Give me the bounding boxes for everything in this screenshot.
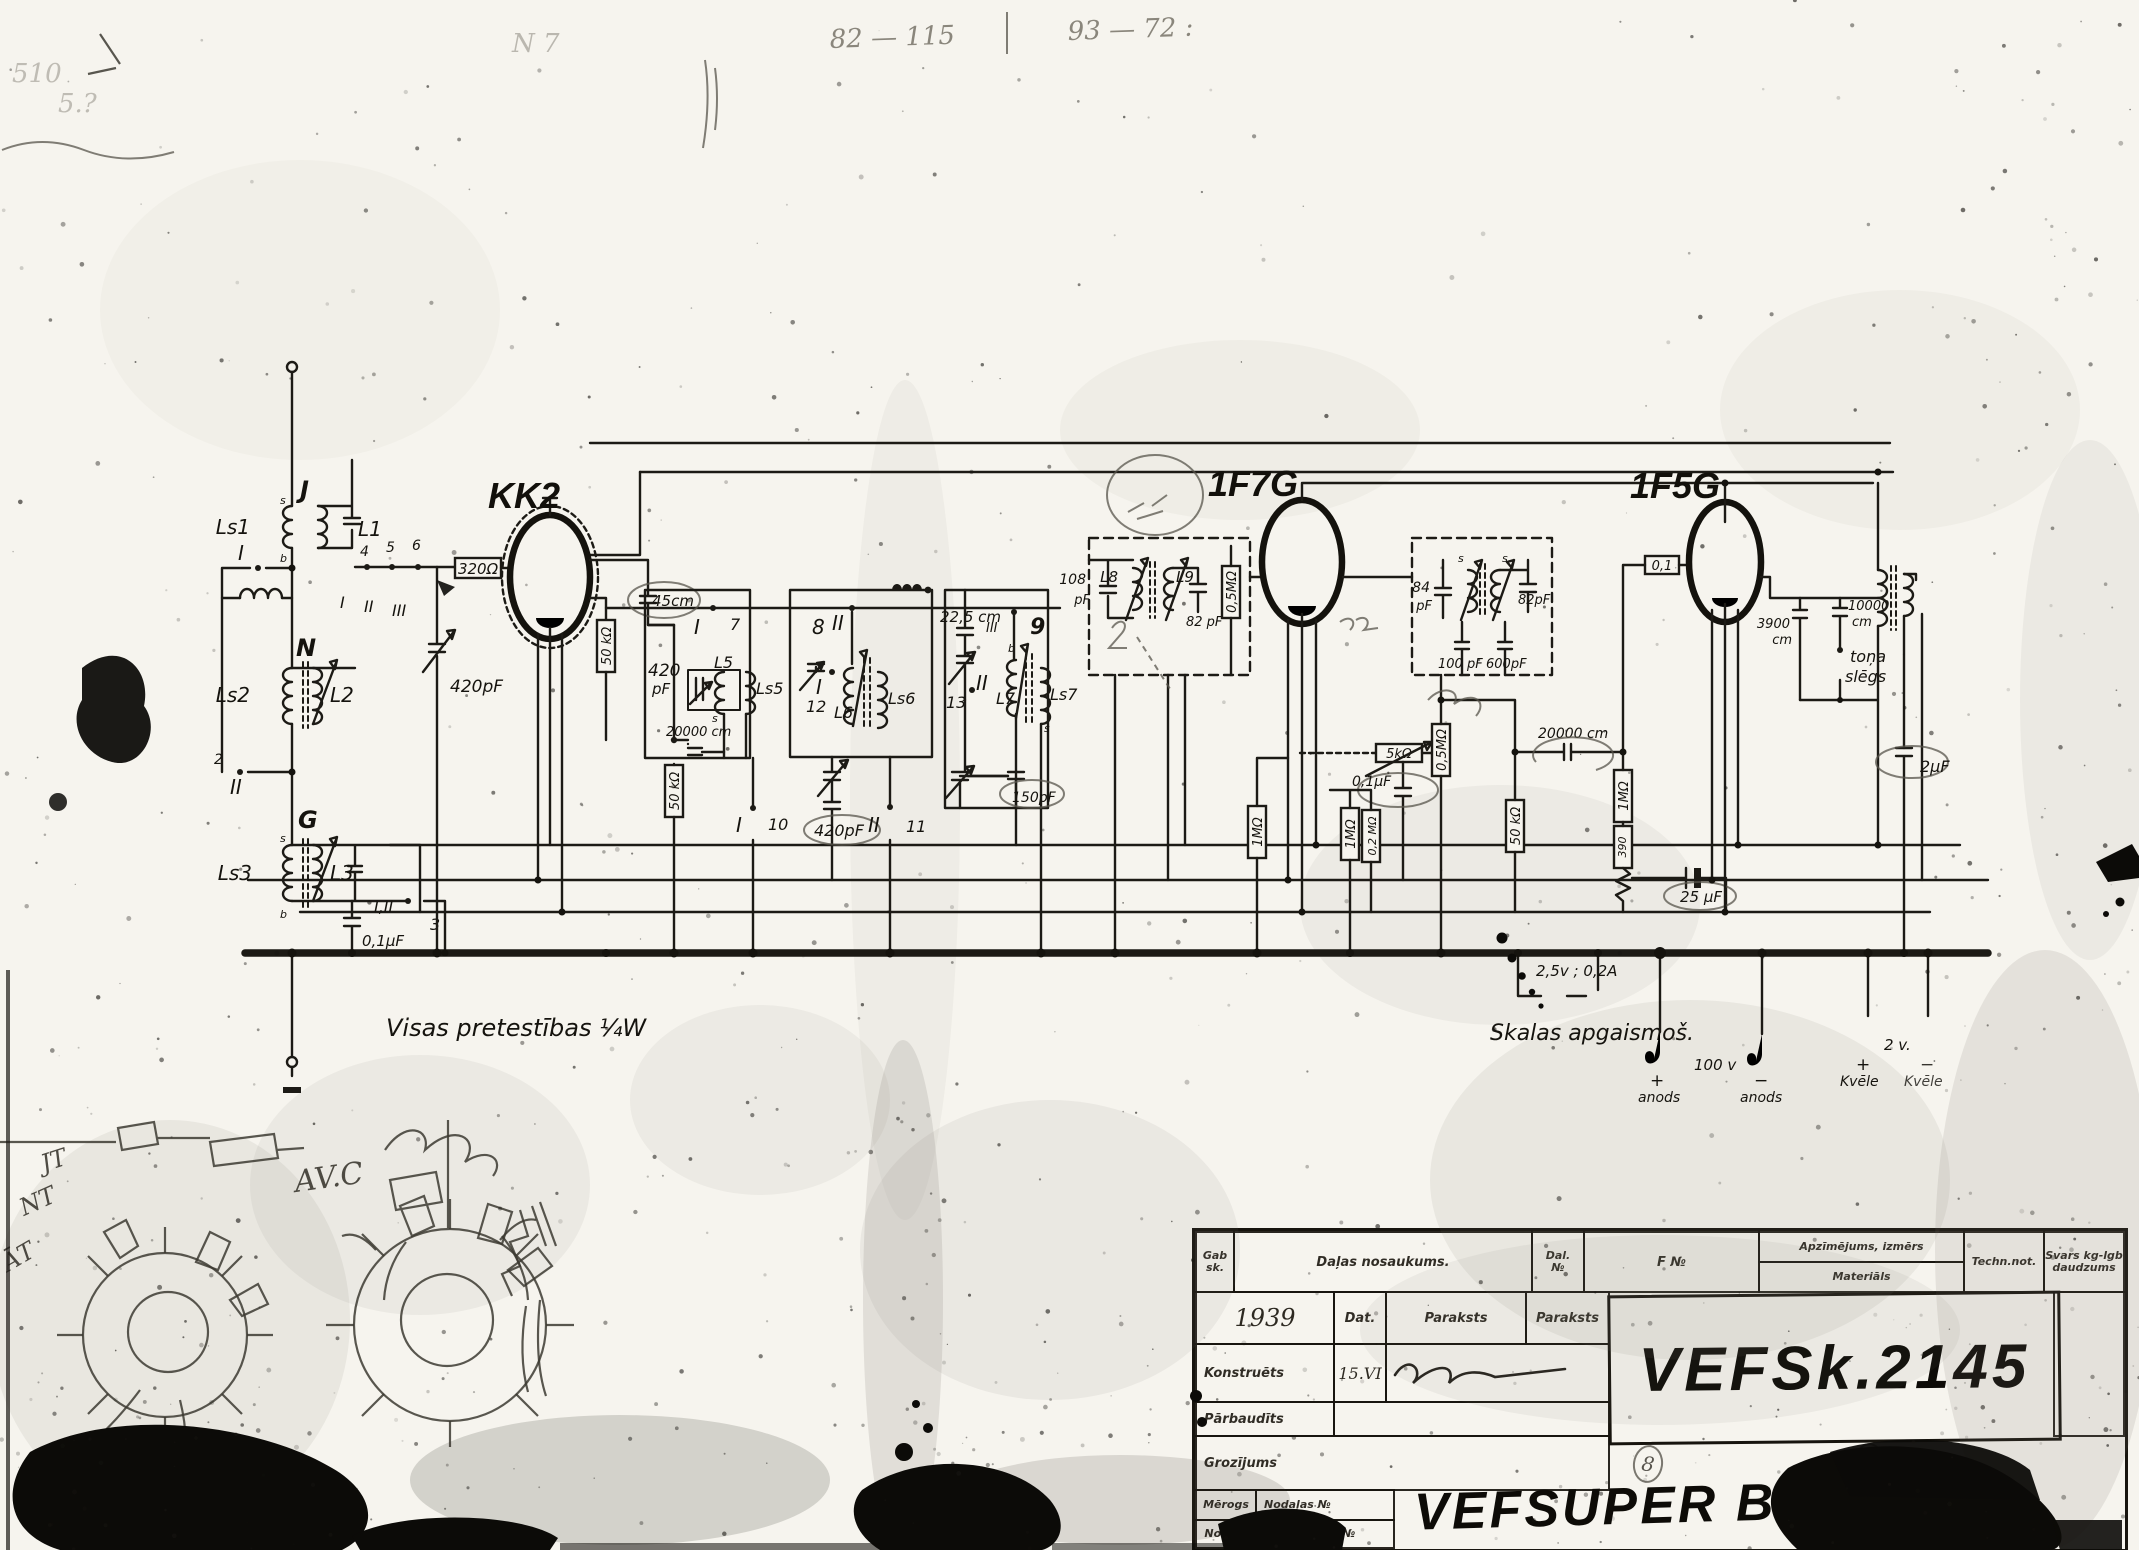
label-ls7: Ls7 bbox=[1050, 685, 1078, 704]
signature-scribble bbox=[1387, 1345, 1597, 1385]
label-sw10-n: 10 bbox=[768, 815, 788, 834]
label-bsIII: III bbox=[392, 601, 406, 620]
label-c01-g: 0,1 bbox=[1652, 559, 1673, 574]
anode-plus-sign: + bbox=[1650, 1071, 1664, 1091]
power-rails bbox=[245, 443, 1988, 953]
doc-number-stamp: VEFSk.2145 bbox=[1607, 1291, 2062, 1446]
label-sw-ii-num: 2 bbox=[214, 752, 223, 768]
pin-b-2: b bbox=[280, 908, 287, 921]
tb-cell-par2: Paraksts bbox=[1525, 1291, 1610, 1345]
label-c3900-u: cm bbox=[1772, 633, 1792, 648]
label-tube-1f7g: 1F7G bbox=[1208, 463, 1298, 504]
tb-cell-ietilpst: Ietilpst daļā № bbox=[1255, 1519, 1395, 1549]
label-c01-input: 0,1µF bbox=[362, 932, 404, 950]
scanned-schematic-page: Gab sk. Daļas nosaukums. Dal. № F № Apzī… bbox=[0, 0, 2139, 1550]
label-c3900-v: 3900 bbox=[1757, 617, 1790, 632]
label-tone-1: toņa bbox=[1850, 647, 1886, 666]
pin-b-3: b bbox=[1008, 642, 1015, 655]
label-c25: 25 µF bbox=[1680, 888, 1722, 906]
label-c01-av: 0,1µF bbox=[1352, 774, 1392, 790]
label-sw7-l: I bbox=[694, 615, 700, 639]
sketch-rotor-2 bbox=[326, 1120, 574, 1447]
tb-cell-fnr: F № bbox=[1583, 1231, 1760, 1293]
label-100v: 100 v bbox=[1694, 1056, 1737, 1074]
label-tube-kk2: KK2 bbox=[488, 475, 560, 516]
tb-apz: Apzīmējums, izmērs bbox=[1799, 1241, 1923, 1253]
label-r50-2: 50 kΩ bbox=[668, 772, 683, 810]
hw-tl-a: 510 bbox=[12, 59, 62, 89]
tb-cell-empty1 bbox=[1333, 1401, 1610, 1437]
label-c82-1: 82 pF bbox=[1186, 615, 1223, 630]
label-l8: L8 bbox=[1100, 568, 1118, 586]
label-j: J bbox=[296, 476, 309, 504]
tb-cell-dalas: Daļas nosaukums. bbox=[1233, 1231, 1533, 1293]
tb-cell-nodalas: Nodaļas № bbox=[1255, 1489, 1395, 1521]
title-block: Gab sk. Daļas nosaukums. Dal. № F № Apzī… bbox=[1192, 1228, 2128, 1550]
label-r5k: 5kΩ bbox=[1386, 747, 1412, 762]
note-dial: Skalas apgaismoš. bbox=[1490, 1021, 1694, 1046]
junction-dots bbox=[288, 469, 1933, 960]
tb-sk: sk. bbox=[1206, 1262, 1224, 1274]
label-c420-tune2: 420pF bbox=[814, 821, 865, 840]
tb-konstr: Konstruēts bbox=[1204, 1366, 1284, 1381]
label-l7: L7 bbox=[996, 689, 1016, 708]
output-section: 0,1 1F5G 3900 cm 10000 cm toņa slēgs bbox=[1623, 465, 1974, 953]
label-bsII: II bbox=[364, 597, 374, 616]
label-sw-iii: I,II bbox=[374, 897, 394, 916]
power-section: 2,5v ; 0,2A Skalas apgaismoš. + anods 10… bbox=[288, 469, 1943, 1107]
tb-model: VEFSUPER B306 bbox=[1413, 1470, 1873, 1543]
label-r50-3: 50 kΩ bbox=[1509, 807, 1524, 845]
tb-nodala: Nodaļa bbox=[1204, 1528, 1247, 1540]
tb-nr: № bbox=[1551, 1262, 1564, 1274]
label-sw9-l: III bbox=[986, 621, 998, 636]
tb-cell-daln: Dal. № bbox=[1531, 1231, 1585, 1293]
tb-nodalas: Nodaļas № bbox=[1264, 1499, 1331, 1511]
label-bs6: 6 bbox=[412, 538, 421, 554]
tb-cell-mat: Materiāls bbox=[1758, 1261, 1965, 1293]
sk-at: ĀT bbox=[0, 1235, 42, 1278]
label-bs4: 4 bbox=[360, 544, 369, 560]
label-c600: 600pF bbox=[1486, 657, 1527, 672]
label-sw11-n: 11 bbox=[906, 817, 926, 836]
tb-doc: VEFSk.2145 bbox=[1638, 1330, 2030, 1405]
label-c82-2: 82pF bbox=[1518, 593, 1551, 608]
label-g: G bbox=[298, 806, 318, 834]
label-sw13-l: II bbox=[976, 671, 988, 695]
sketch-rotor-1 bbox=[57, 1220, 273, 1470]
tb-paraksts1: Paraksts bbox=[1425, 1311, 1488, 1326]
fil-minus-sign: − bbox=[1920, 1055, 1934, 1075]
label-sw-i: I bbox=[238, 541, 244, 565]
label-c420-tune1: 420pF bbox=[450, 677, 503, 697]
label-bs5: 5 bbox=[386, 540, 395, 556]
pin-s-1: s bbox=[280, 494, 286, 507]
label-sw11-l: II bbox=[868, 813, 880, 837]
label-r390: 390 bbox=[1616, 837, 1629, 858]
label-sw-iii-num: 3 bbox=[430, 915, 440, 934]
hw-top-a: 82 — 115 bbox=[829, 21, 955, 55]
anode-minus-label: anods bbox=[1740, 1090, 1782, 1106]
tb-cell-empty2 bbox=[2053, 1291, 2125, 1437]
label-r1m-3: 1MΩ bbox=[1617, 781, 1632, 810]
label-ls2: Ls2 bbox=[216, 683, 250, 707]
label-n: N bbox=[296, 634, 316, 662]
label-r05-2: 0,5MΩ bbox=[1435, 729, 1450, 771]
hw-tl-b: 5.? bbox=[58, 89, 98, 119]
label-l2: L2 bbox=[330, 683, 354, 707]
label-r1m-2: 1MΩ bbox=[1344, 819, 1359, 848]
label-sw12-n: 12 bbox=[806, 697, 826, 716]
tb-ietilpst: Ietilpst daļā № bbox=[1264, 1528, 1355, 1540]
tb-techn: Techn.not. bbox=[1972, 1256, 2037, 1268]
tb-mat: Materiāls bbox=[1832, 1271, 1890, 1283]
tb-cell-kdate: 15.VI bbox=[1333, 1343, 1387, 1403]
label-ls1: Ls1 bbox=[216, 515, 250, 539]
label-c45: 45cm bbox=[652, 592, 694, 610]
label-c10000-v: 10000 bbox=[1848, 599, 1889, 614]
pencil-sketch-sockets: JT NT ĀT AV.C bbox=[0, 1120, 574, 1470]
label-c420pad-v: 420 bbox=[648, 661, 680, 681]
sk-jt: JT bbox=[32, 1143, 72, 1180]
tb-cell-parb: Pārbaudīts bbox=[1195, 1401, 1335, 1437]
label-c10000-u: cm bbox=[1852, 615, 1872, 630]
label-l9: L9 bbox=[1176, 568, 1194, 586]
tb-fnr: F № bbox=[1657, 1255, 1686, 1270]
label-l3: L3 bbox=[330, 861, 354, 885]
tb-groz: Grozījums bbox=[1204, 1456, 1277, 1471]
tb-cell-par1: Paraksts bbox=[1385, 1291, 1527, 1345]
tb-year: 1939 bbox=[1234, 1304, 1295, 1332]
label-sw8-n: 8 bbox=[812, 615, 825, 639]
tube-kk2: KK2 bbox=[488, 475, 1118, 912]
label-sw13-n: 13 bbox=[946, 693, 966, 712]
sk-nt: NT bbox=[14, 1180, 62, 1222]
label-ls5: Ls5 bbox=[756, 679, 783, 698]
label-tube-1f5g: 1F5G bbox=[1630, 465, 1720, 506]
oscillator-section: 50 kΩ 45cm I 7 L5 Ls5 s 420 pF 20000 cm bbox=[590, 545, 1078, 1085]
label-c20000-1: 20000 cm bbox=[666, 725, 731, 740]
tb-cell-merogs: Mērogs bbox=[1195, 1489, 1257, 1521]
tb-parb: Pārbaudīts bbox=[1204, 1412, 1284, 1427]
label-c84-u: pF bbox=[1415, 599, 1432, 614]
fil-plus-sign: + bbox=[1856, 1055, 1870, 1075]
tb-cell-dat: Dat. bbox=[1333, 1291, 1387, 1345]
label-2v: 2 v. bbox=[1884, 1036, 1911, 1054]
tb-cell-year: 1939 bbox=[1195, 1291, 1335, 1345]
note-resistors: Visas pretestības ¼W bbox=[386, 1014, 647, 1042]
tb-cell-sign bbox=[1385, 1343, 1610, 1403]
label-c2: 2µF bbox=[1920, 757, 1950, 776]
tb-merogs: Mērogs bbox=[1203, 1499, 1249, 1511]
antenna-input-section: J Ls1 L1 s b I N Ls2 L2 bbox=[214, 312, 647, 1094]
label-r50-1: 50 kΩ bbox=[600, 627, 615, 665]
pin-s-6: s bbox=[1502, 552, 1508, 565]
anode-minus-sign: − bbox=[1754, 1071, 1768, 1091]
label-c420pad-u: pF bbox=[651, 680, 671, 698]
tb-cell-nodala: Nodaļa bbox=[1195, 1519, 1257, 1549]
pencil-handwriting-top: 82 — 115 93 — 72 : N 7 510 5.? bbox=[2, 12, 1194, 159]
label-c150: 150pF bbox=[1012, 790, 1057, 806]
tb-daudz: daudzums bbox=[2052, 1262, 2115, 1274]
label-sw12-l: I bbox=[816, 675, 822, 699]
pin-b-1: b bbox=[280, 552, 287, 565]
tb-paraksts2: Paraksts bbox=[1536, 1311, 1599, 1326]
label-ls3: Ls3 bbox=[218, 861, 252, 885]
fil-minus-label: Kvēle bbox=[1904, 1074, 1943, 1090]
label-bsI: I bbox=[340, 593, 345, 612]
if-section: 108 pF L8 L9 82 pF 0,5MΩ 1F7G bbox=[1059, 455, 1736, 953]
label-c225: 22,5 cm bbox=[940, 608, 1001, 626]
pin-s-2: s bbox=[280, 832, 286, 845]
label-sw7-n: 7 bbox=[730, 615, 741, 634]
label-c84-v: 84 bbox=[1412, 580, 1430, 596]
label-c100: 100 pF bbox=[1438, 657, 1483, 672]
tb-cell-svars: Svars kg-lgb daudzums bbox=[2043, 1231, 2125, 1293]
label-l6: L6 bbox=[834, 703, 853, 722]
tb-kdate: 15.VI bbox=[1338, 1364, 1381, 1383]
label-ls6: Ls6 bbox=[888, 689, 915, 708]
label-c108-u: pF bbox=[1073, 593, 1090, 608]
label-sw9-n: 9 bbox=[1030, 615, 1045, 640]
anode-plus-label: anods bbox=[1638, 1090, 1680, 1106]
hw-top-b: 93 — 72 : bbox=[1067, 13, 1194, 47]
label-r320: 320Ω bbox=[458, 560, 499, 578]
label-tone-2: slēgs bbox=[1845, 667, 1886, 686]
tb-dalas: Daļas nosaukums. bbox=[1316, 1255, 1449, 1270]
pin-s-4: s bbox=[1044, 722, 1050, 735]
tb-dat: Dat. bbox=[1345, 1311, 1376, 1326]
label-r1m-1: 1MΩ bbox=[1251, 817, 1266, 846]
pin-s-3: s bbox=[712, 712, 718, 725]
label-r05-1: 0,5MΩ bbox=[1225, 571, 1240, 613]
note-lamp: 2,5v ; 0,2A bbox=[1536, 962, 1617, 980]
label-l1: L1 bbox=[358, 517, 382, 541]
hw-top-c: N 7 bbox=[511, 29, 560, 59]
tb-cell-gab: Gab sk. bbox=[1195, 1231, 1235, 1293]
pin-s-5: s bbox=[1458, 552, 1464, 565]
tb-cell-apz: Apzīmējums, izmērs bbox=[1758, 1231, 1965, 1263]
label-r02m: 0,2 MΩ bbox=[1366, 816, 1379, 855]
label-l5: L5 bbox=[714, 653, 733, 672]
label-c108-v: 108 bbox=[1059, 572, 1086, 588]
label-sw-ii: II bbox=[230, 775, 242, 799]
tb-cell-konstr: Konstruēts bbox=[1195, 1343, 1335, 1403]
label-c20000-2: 20000 cm bbox=[1538, 726, 1608, 742]
label-sw10-l: I bbox=[736, 813, 742, 837]
sk-avc: AV.C bbox=[289, 1156, 365, 1201]
label-sw8-l: II bbox=[832, 611, 844, 635]
fil-plus-label: Kvēle bbox=[1840, 1074, 1879, 1090]
tb-cell-techn: Techn.not. bbox=[1963, 1231, 2045, 1293]
